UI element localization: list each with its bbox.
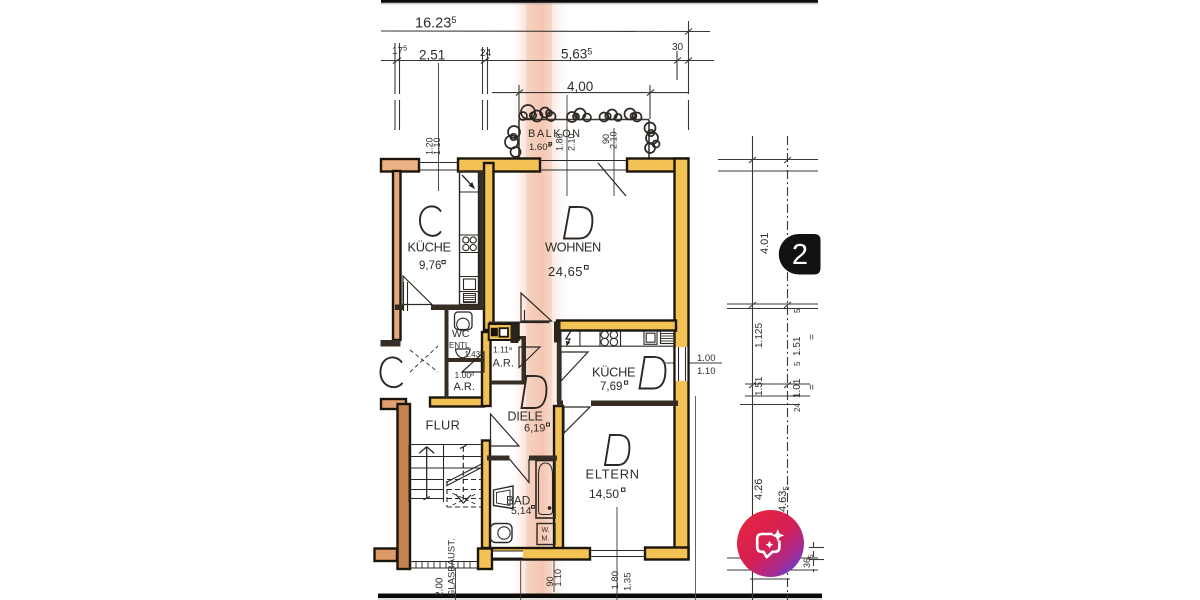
svg-text:2.10: 2.10 — [567, 133, 577, 151]
svg-text:4.01: 4.01 — [759, 233, 771, 254]
svg-text:24: 24 — [480, 48, 492, 59]
svg-text:4.26: 4.26 — [753, 479, 765, 500]
svg-text:1.125: 1.125 — [754, 323, 765, 348]
svg-text:2.00: 2.00 — [435, 577, 446, 597]
svg-text:2,51: 2,51 — [419, 48, 445, 63]
svg-text:5,14: 5,14 — [511, 505, 532, 517]
svg-text:7,69: 7,69 — [600, 381, 622, 393]
svg-text:1.80: 1.80 — [610, 571, 621, 590]
svg-text:A.R.: A.R. — [493, 358, 514, 370]
svg-text:1.10: 1.10 — [553, 569, 563, 587]
svg-text:24,65: 24,65 — [548, 264, 583, 279]
svg-text:1.51: 1.51 — [792, 336, 803, 356]
svg-text:5: 5 — [793, 361, 802, 366]
svg-text:14,50: 14,50 — [589, 487, 619, 501]
svg-text:W.: W. — [542, 527, 550, 534]
svg-text:1.00: 1.00 — [697, 353, 716, 364]
svg-text:M.: M. — [542, 536, 550, 543]
svg-text:1.10: 1.10 — [697, 366, 716, 377]
svg-text:5: 5 — [793, 308, 802, 313]
svg-text:6,19: 6,19 — [524, 423, 545, 435]
svg-text:2.10: 2.10 — [609, 131, 619, 149]
svg-text:1.35: 1.35 — [623, 573, 634, 592]
svg-text:1.10: 1.10 — [432, 137, 442, 155]
svg-text:30: 30 — [672, 42, 684, 53]
svg-text:=: = — [807, 334, 818, 340]
svg-text:DIELE: DIELE — [508, 410, 543, 424]
svg-text:KÜCHE: KÜCHE — [408, 240, 451, 255]
svg-text:KÜCHE: KÜCHE — [592, 365, 635, 380]
svg-text:FLUR: FLUR — [426, 418, 461, 433]
svg-text:WC: WC — [452, 328, 470, 340]
svg-text:16.235: 16.235 — [415, 15, 457, 32]
svg-text:A.R.: A.R. — [454, 381, 475, 393]
svg-text:1.80: 1.80 — [555, 133, 565, 151]
svg-text:1.51: 1.51 — [754, 376, 765, 396]
svg-text:ENTL: ENTL — [449, 341, 470, 350]
svg-text:ELTERN: ELTERN — [586, 467, 640, 482]
svg-text:1.01: 1.01 — [792, 378, 803, 398]
svg-text:2: 2 — [792, 239, 808, 271]
svg-text:9,76: 9,76 — [419, 260, 441, 272]
svg-text:4,00: 4,00 — [567, 79, 593, 94]
svg-text:24: 24 — [793, 403, 802, 412]
svg-text:=: = — [807, 384, 818, 390]
svg-text:WOHNEN: WOHNEN — [545, 240, 601, 255]
